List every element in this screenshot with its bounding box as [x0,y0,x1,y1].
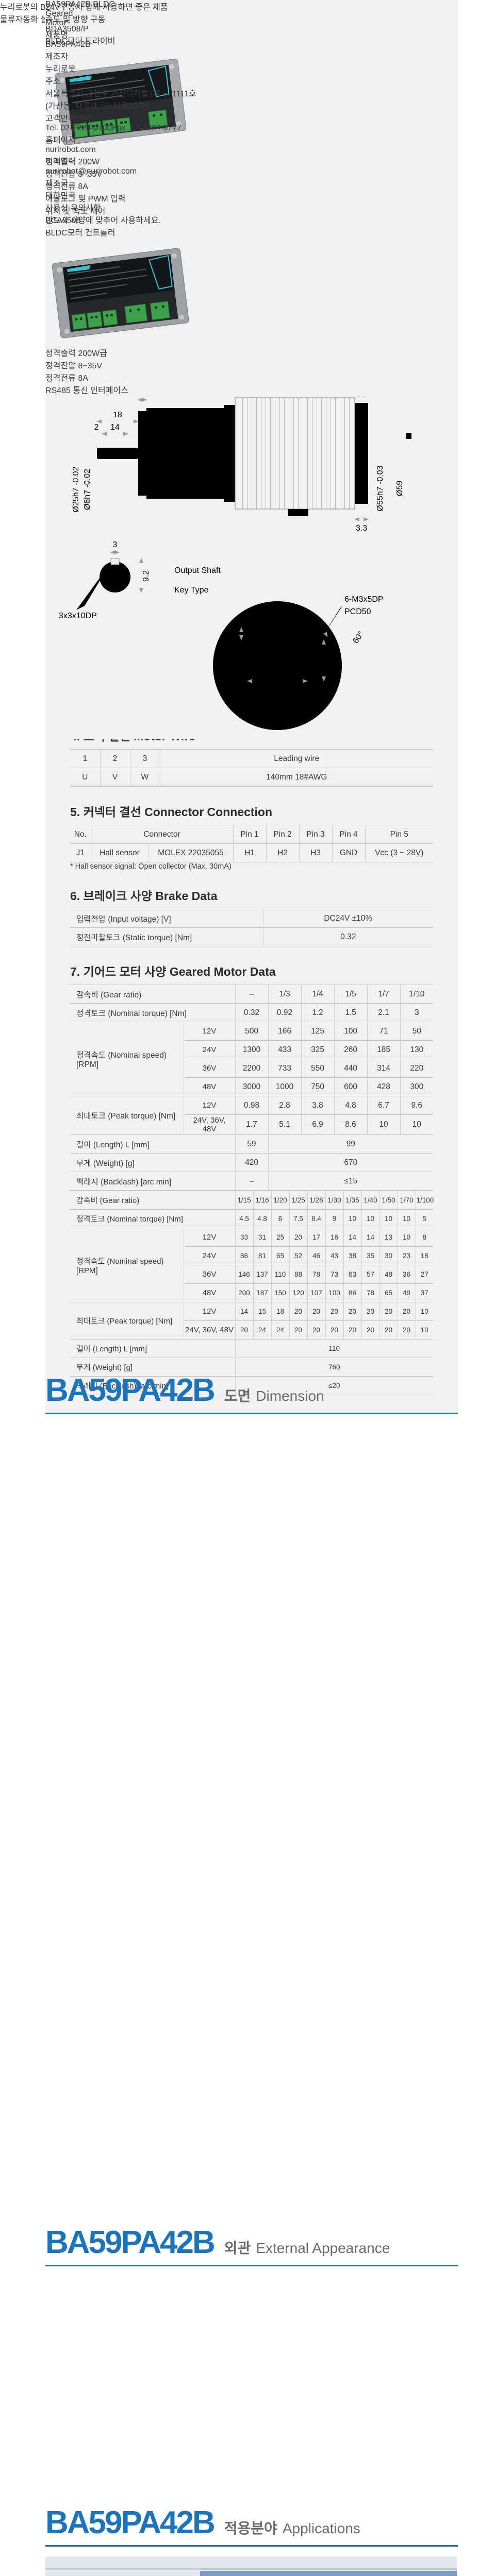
spec-value-cell: 20 [379,1321,398,1340]
spec-value-cell: 2 [100,750,130,768]
footer-model: BA59PA42B [45,0,91,9]
spec-label-cell: 정격토크 (Nominal torque) [Nm] [70,1210,235,1228]
spec-value-cell: 130 [400,1041,433,1059]
spec-value-cell: 33 [235,1228,253,1247]
spec-value-cell: 760 [235,1358,433,1377]
spec-value-cell: 1/30 [325,1191,343,1210]
spec-value-cell: 1/28 [307,1191,325,1210]
section-subtitle-en: External Appearance [256,2240,390,2257]
spec-label-cell: 길이 (Length) L [mm] [70,1135,235,1154]
spec-value-cell: 166 [268,1022,301,1041]
bldc-geared-motor-logo: BLDC Geared Motor [45,0,458,28]
product-photo-controller [45,238,458,346]
section-rule [45,1413,458,1414]
table-row: 최대토크 (Peak torque) [Nm]12V0.982.83.84.86… [70,1096,433,1115]
spec-value-cell: 670 [268,1154,433,1172]
footer-logo-main: BLDC [93,0,115,9]
section-subtitle-en: Applications [283,2520,360,2537]
spec-value-cell: 0.32 [263,928,433,946]
spec-value-cell: 107 [307,1284,325,1302]
footer-row-label: 고객만족센터 [45,111,458,124]
spec-value-cell: 2.1 [367,1004,400,1022]
spec-value-cell: 57 [361,1265,379,1284]
rear-view: 1 J1 U V W 6 16 16 6-M3x5DP PCD50 60° [200,594,384,736]
spec-value-cell: Vcc (3 ~ 28V) [365,844,433,862]
spec-value-cell: 20 [289,1321,307,1340]
svg-text:Ø10: Ø10 [146,481,155,496]
spec-value-cell: U [70,768,100,787]
spec-subgroup-cell: 24V, 36V, 48V [184,1321,235,1340]
table-row: 최대토크 (Peak torque) [Nm]12V14151820202020… [70,1302,433,1321]
spec-value-cell: 1/50 [379,1191,398,1210]
spec-value-cell: 6 [271,1210,289,1228]
spec-subgroup-cell: 12V [184,1302,235,1321]
spec-value-cell: 81 [253,1247,271,1265]
footer-row-value: Tel. 02-2224-0700Fax. 02-2224-0777 [45,124,458,133]
spec-value-cell: 17 [307,1228,325,1247]
spec-value-cell: 600 [334,1078,367,1096]
geared-motor-table-low-ratio: 감속비 (Gear ratio)–1/31/41/51/71/10정격토크 (N… [70,985,433,1191]
spec-value-cell: 0.32 [235,1004,268,1022]
spec-value-cell: 20 [289,1302,307,1321]
footer-row-value: 서울특별시 금천구 가산디지털1로 5, 1111호(가산동, 대륭테크노타운2… [45,87,458,111]
spec-value-cell: H3 [299,844,332,862]
footer-panel: BA59PA42B BLDC Geared Motor 제품명BA59PA42B… [45,0,458,226]
spec-value-cell: 20 [235,1321,253,1340]
footer-info-table: 제품명BA59PA42B제조자누리로봇주소서울특별시 금천구 가산디지털1로 5… [45,28,458,226]
spec-value-cell: 9 [325,1210,343,1228]
spec-value-cell: 100 [325,1284,343,1302]
svg-text:1: 1 [240,647,244,656]
spec-value-cell: 20 [343,1321,361,1340]
footer-row-label: 제품명 [45,28,458,40]
spec-value-cell: 2200 [235,1059,268,1078]
spec-subgroup-cell: 48V [184,1284,235,1302]
table-title-brake: 6. 브레이크 사양 Brake Data [70,886,433,904]
spec-subgroup-cell: 12V [184,1228,235,1247]
spec-value-cell: 110 [235,1340,433,1358]
section-subtitle-ko: 도면 [224,1385,251,1405]
spec-value-cell: No. [70,825,91,844]
spec-value-cell: 1/20 [271,1191,289,1210]
spec-value-cell: 3 [130,750,160,768]
svg-text:W: W [279,623,288,632]
spec-label-cell: 정격속도 (Nominal speed) [RPM] [70,1228,184,1302]
table-row: 정전마찰토크 (Static torque) [Nm]0.32 [70,928,433,946]
spec-value-cell: 23 [398,1247,416,1265]
spec-subgroup-cell: 48V [184,1078,235,1096]
spec-value-cell: 1/100 [416,1191,433,1210]
footer-logo-sub1: Geared [45,9,458,19]
spec-value-cell: 20 [289,1228,307,1247]
spec-value-cell: 150 [271,1284,289,1302]
spec-subgroup-cell: 36V [184,1265,235,1284]
spec-value-cell: 18 [416,1247,433,1265]
spec-value-cell: 4.8 [334,1096,367,1115]
spec-value-cell: 20 [398,1302,416,1321]
svg-text:Output Shaft: Output Shaft [174,566,221,575]
spec-value-cell: 10 [400,1115,433,1135]
spec-value-cell: 6.7 [367,1096,400,1115]
footer-row-label: 사용상 유의사항 [45,201,458,213]
svg-text:16: 16 [325,656,334,665]
applications-photo-factory [45,2556,457,2576]
spec-value-cell: 314 [367,1059,400,1078]
spec-value-cell: 18 [271,1302,289,1321]
spec-value-cell: 50 [400,1022,433,1041]
spec-value-cell: 1.5 [334,1004,367,1022]
spec-subgroup-cell: 12V [184,1096,235,1115]
svg-text:3: 3 [113,540,118,549]
spec-label-cell: 정격토크 (Nominal torque) [Nm] [70,1004,235,1022]
spec-value-cell: 1/35 [343,1191,361,1210]
spec-label-cell: 정전마찰토크 (Static torque) [Nm] [70,928,263,946]
spec-value-cell: 71 [367,1022,400,1041]
spec-value-cell: 49 [398,1284,416,1302]
model-name: BA59PA42B [45,1375,214,1406]
spec-value-cell: 220 [400,1059,433,1078]
footer-row-value: BA59PA42B [45,40,458,49]
svg-text:2: 2 [94,423,99,432]
footer-row-value: nurirobot@nurirobot.com [45,167,458,176]
model-name: BA59PA42B [45,2227,214,2259]
footer-row: 제조국대한민국 [45,176,458,201]
spec-value-cell: 1/7 [367,985,400,1004]
feature-item: RS485 통신 인터페이스 [45,383,458,396]
spec-value-cell: 20 [379,1302,398,1321]
spec-subgroup-cell: 12V [184,1022,235,1041]
spec-value-cell: 59 [235,1135,268,1154]
spec-value-cell: 20 [361,1321,379,1340]
spec-value-cell: 10 [343,1210,361,1228]
svg-text:3.3: 3.3 [356,524,367,533]
spec-value-cell: 1300 [235,1041,268,1059]
table-row: 정격속도 (Nominal speed) [RPM]12V33312520171… [70,1228,433,1247]
spec-value-cell: 78 [307,1265,325,1284]
spec-value-cell: 15 [253,1302,271,1321]
spec-value-cell: 3 [400,1004,433,1022]
spec-value-cell: 9.6 [400,1096,433,1115]
spec-value-cell: 14 [361,1228,379,1247]
spec-value-cell: 2.8 [268,1096,301,1115]
spec-value-cell: 3.8 [301,1096,334,1115]
footer-row-label: 제조국 [45,176,458,189]
spec-value-cell: 5.1 [268,1115,301,1135]
spec-value-cell: 6.9 [301,1115,334,1135]
spec-value-cell: 0.98 [235,1096,268,1115]
spec-value-cell: 35 [361,1247,379,1265]
spec-value-cell: 100 [334,1022,367,1041]
svg-text:18: 18 [113,411,122,419]
spec-value-cell: 73 [325,1265,343,1284]
product-feature-list: 정격출력 200W급정격전압 8~35V정격전류 8ARS485 통신 인터페이… [45,346,458,396]
table-row: 감속비 (Gear ratio)1/151/161/201/251/281/30… [70,1191,433,1210]
footer-row: 홈페이지nurirobot.com [45,133,458,155]
table-row: 무게 (Weight) [g]420670 [70,1154,433,1172]
spec-value-cell: 99 [268,1135,433,1154]
spec-value-cell: 1/16 [253,1191,271,1210]
recommended-product-controller: 위치 및 속도 제어 BCA3508 BLDC모터 컨트롤러 [45,204,458,396]
spec-value-cell: Pin 2 [266,825,299,844]
spec-label-cell: 감속비 (Gear ratio) [70,1191,235,1210]
spec-value-cell: 1/10 [400,985,433,1004]
spec-value-cell: 8.6 [334,1115,367,1135]
spec-value-cell: 20 [307,1302,325,1321]
spec-value-cell: 8.4 [307,1210,325,1228]
feature-item: 정격전류 8A [45,371,458,383]
spec-value-cell: 1.7 [235,1115,268,1135]
motor-wire-table: 123Leading wireUVW140mm 18#AWG [70,749,433,787]
spec-label-cell: 백래시 (Backlash) [arc min] [70,1172,235,1191]
svg-text:Ø8h7 -0.02: Ø8h7 -0.02 [83,469,92,510]
footer-row-label: 이메일 [45,155,458,167]
svg-text:6: 6 [233,630,238,639]
section-subtitle-ko: 적용분야 [224,2517,277,2538]
spec-value-cell: 20 [343,1302,361,1321]
spec-value-cell: 10 [379,1210,398,1228]
spec-value-cell: 65 [271,1247,289,1265]
spec-value-cell: 24 [271,1321,289,1340]
spec-value-cell: ≤15 [268,1172,433,1191]
spec-value-cell: 750 [301,1078,334,1096]
spec-value-cell: 1/15 [235,1191,253,1210]
spec-value-cell: 13 [379,1228,398,1247]
section-heading-applications: BA59PA42B 적용분야 Applications [45,2507,458,2547]
svg-text:Ø25h7 -0.02: Ø25h7 -0.02 [72,466,80,512]
spec-value-cell: Pin 5 [365,825,433,844]
svg-text:6-M3x5DP: 6-M3x5DP [344,595,384,604]
spec-value-cell: 1/40 [361,1191,379,1210]
spec-value-cell: 38 [343,1247,361,1265]
footer-row-value: 대한민국 [45,189,458,201]
spec-value-cell: 3000 [235,1078,268,1096]
footer-row-value: 반드시 사양에 맞추어 사용하세요. [45,213,458,226]
spec-value-cell: MOLEX 22035055 [148,844,233,862]
spec-value-cell: 325 [301,1041,334,1059]
svg-text:Key Type: Key Type [174,586,209,595]
svg-text:60°: 60° [351,630,366,646]
svg-text:3x3x10DP: 3x3x10DP [59,612,97,620]
table-title-connector: 5. 커넥터 결선 Connector Connection [70,802,433,820]
spec-value-cell: J1 [70,844,91,862]
spec-value-cell: GND [332,844,365,862]
spec-value-cell: 36 [398,1265,416,1284]
spec-value-cell: 120 [289,1284,307,1302]
spec-value-cell: 433 [268,1041,301,1059]
spec-value-cell: 27 [416,1265,433,1284]
spec-value-cell: 8 [416,1228,433,1247]
table-row: 정격토크 (Nominal torque) [Nm]0.320.921.21.5… [70,1004,433,1022]
spec-value-cell: Hall sensor [91,844,148,862]
spec-value-cell: 5 [416,1210,433,1228]
svg-text:Ø55h7 -0.03: Ø55h7 -0.03 [376,465,385,511]
spec-subgroup-cell: 24V [184,1041,235,1059]
section-heading-appearance: BA59PA42B 외관 External Appearance [45,2227,458,2266]
spec-value-cell: 10 [416,1302,433,1321]
svg-text:16: 16 [273,686,282,694]
section-rule [45,2545,458,2547]
spec-label-cell: 입력전압 (Input voltage) [V] [70,909,263,928]
spec-value-cell: Connector [91,825,233,844]
spec-value-cell: 137 [253,1265,271,1284]
spec-label-cell: 감속비 (Gear ratio) [70,985,235,1004]
spec-value-cell: 25 [271,1228,289,1247]
spec-value-cell: 146 [235,1265,253,1284]
spec-value-cell: 1/4 [301,985,334,1004]
spec-value-cell: 140mm 18#AWG [160,768,433,787]
spec-value-cell: 20 [325,1321,343,1340]
footer-row-label: 주소 [45,74,458,87]
spec-value-cell: Pin 4 [332,825,365,844]
spec-value-cell: H2 [266,844,299,862]
spec-value-cell: 88 [289,1265,307,1284]
spec-value-cell: 1/70 [398,1191,416,1210]
table-row: 길이 (Length) L [mm]110 [70,1340,433,1358]
table-row: 정격속도 (Nominal speed) [RPM]12V50016612510… [70,1022,433,1041]
spec-value-cell: 185 [367,1041,400,1059]
section-heading-dimension: BA59PA42B 도면 Dimension [45,1375,458,1414]
spec-value-cell: W [130,768,160,787]
table-row: J1Hall sensorMOLEX 22035055H1H2H3GNDVcc … [70,844,433,862]
spec-value-cell: 187 [253,1284,271,1302]
spec-value-cell: 20 [398,1321,416,1340]
footer-row: 이메일nurirobot@nurirobot.com [45,155,458,176]
table-row: 123Leading wire [70,750,433,768]
spec-value-cell: V [100,768,130,787]
spec-value-cell: 10 [361,1210,379,1228]
table-row: No.ConnectorPin 1Pin 2Pin 3Pin 4Pin 5 [70,825,433,844]
spec-value-cell: 20 [325,1302,343,1321]
spec-value-cell: 7.5 [289,1210,307,1228]
svg-text:V: V [269,623,274,632]
table-row: UVW140mm 18#AWG [70,768,433,787]
table-row: 백래시 (Backlash) [arc min]–≤15 [70,1172,433,1191]
spec-value-cell: 46 [307,1247,325,1265]
spec-value-cell: 86 [343,1284,361,1302]
spec-label-cell: 최대토크 (Peak torque) [Nm] [70,1096,184,1135]
spec-value-cell: – [235,1172,268,1191]
footer-row-value: nurirobot.com [45,145,458,155]
spec-value-cell: Leading wire [160,750,433,768]
spec-value-cell: 10 [398,1228,416,1247]
section-rule [45,2265,458,2266]
table-row: 길이 (Length) L [mm]5999 [70,1135,433,1154]
spec-label-cell: 최대토크 (Peak torque) [Nm] [70,1302,184,1340]
footer-row-label: 제조자 [45,49,458,62]
spec-value-cell: 200 [235,1284,253,1302]
spec-value-cell: 428 [367,1078,400,1096]
model-name: BA59PA42B [45,2507,214,2539]
product-type: BLDC모터 컨트롤러 [45,226,458,238]
spec-value-cell: 43 [325,1247,343,1265]
spec-value-cell: 110 [271,1265,289,1284]
footer-row: 제조자누리로봇 [45,49,458,74]
spec-value-cell: 37 [416,1284,433,1302]
svg-text:9.2: 9.2 [142,570,151,582]
spec-value-cell: 63 [343,1265,361,1284]
table-row: 정격토크 (Nominal torque) [Nm]4.54.867.58.49… [70,1210,433,1228]
spec-value-cell: 420 [235,1154,268,1172]
connector-table: No.ConnectorPin 1Pin 2Pin 3Pin 4Pin 5J1H… [70,825,433,862]
footer-row: 사용상 유의사항반드시 사양에 맞추어 사용하세요. [45,201,458,226]
footer-row-value: 누리로봇 [45,62,458,74]
key-section-view: 3 9.2 3x3x10DP Output Shaft Key Type [59,540,221,620]
footer-logo-sub2: Motor [45,19,458,28]
brake-data-table: 입력전압 (Input voltage) [V]DC24V ±10%정전마찰토크… [70,909,433,946]
footer-header: BA59PA42B BLDC Geared Motor [45,0,458,28]
spec-subgroup-cell: 24V [184,1247,235,1265]
spec-value-cell: 1/25 [289,1191,307,1210]
spec-value-cell: 4.5 [235,1210,253,1228]
svg-text:14: 14 [110,423,120,432]
spec-value-cell: 440 [334,1059,367,1078]
spec-value-cell: 65 [379,1284,398,1302]
geared-motor-table-high-ratio: 감속비 (Gear ratio)1/151/161/201/251/281/30… [70,1191,433,1395]
connector-note: * Hall sensor signal: Open collector (Ma… [70,862,433,871]
svg-text:PCD50: PCD50 [344,607,371,616]
spec-value-cell: 4.8 [253,1210,271,1228]
spec-value-cell: 24 [253,1321,271,1340]
footer-row: 제품명BA59PA42B [45,28,458,49]
spec-value-cell: 78 [361,1284,379,1302]
spec-value-cell: 1/3 [268,985,301,1004]
spec-value-cell: DC24V ±10% [263,909,433,928]
spec-value-cell: Pin 1 [233,825,266,844]
svg-text:J1: J1 [310,647,319,656]
footer-row-value-line2: (가산동, 대륭테크노타운20차) [45,99,458,111]
spec-value-cell: 0.92 [268,1004,301,1022]
spec-value-cell: 733 [268,1059,301,1078]
spec-value-cell: Pin 3 [299,825,332,844]
spec-value-cell: 20 [307,1321,325,1340]
svg-text:U: U [256,623,262,632]
spec-value-cell: 16 [325,1228,343,1247]
spec-value-cell: 1/5 [334,985,367,1004]
spec-value-cell: 500 [235,1022,268,1041]
feature-item: 정격전압 8~35V [45,359,458,371]
spec-value-cell: 260 [334,1041,367,1059]
footer-row: 고객만족센터Tel. 02-2224-0700Fax. 02-2224-0777 [45,111,458,133]
spec-value-cell: 10 [416,1321,433,1340]
spec-value-cell: 550 [301,1059,334,1078]
spec-value-cell: 20 [361,1302,379,1321]
spec-label-cell: 길이 (Length) L [mm] [70,1340,235,1358]
spec-value-cell: 30 [379,1247,398,1265]
spec-label-cell: 무게 (Weight) [g] [70,1154,235,1172]
spec-value-cell: 31 [253,1228,271,1247]
spec-value-cell: 1.2 [301,1004,334,1022]
spec-value-cell: 125 [301,1022,334,1041]
spec-value-cell: 1000 [268,1078,301,1096]
spec-value-cell: 14 [343,1228,361,1247]
footer-row-value-secondary: Fax. 02-2224-0777 [112,124,181,132]
spec-subgroup-cell: 36V [184,1059,235,1078]
spec-value-cell: 10 [367,1115,400,1135]
spec-value-cell: 52 [289,1247,307,1265]
section-subtitle-ko: 외관 [224,2237,251,2258]
spec-value-cell: 14 [235,1302,253,1321]
spec-value-cell: 86 [235,1247,253,1265]
feature-item: 정격출력 200W급 [45,346,458,359]
footer-row: 주소서울특별시 금천구 가산디지털1로 5, 1111호(가산동, 대륭테크노타… [45,74,458,111]
table-title-geared: 7. 기어드 모터 사양 Geared Motor Data [70,962,433,979]
spec-value-cell: H1 [233,844,266,862]
spec-value-cell: 10 [398,1210,416,1228]
spec-value-cell: 300 [400,1078,433,1096]
spec-subgroup-cell: 24V, 36V, 48V [184,1115,235,1135]
spec-value-cell: 48 [379,1265,398,1284]
spec-value-cell: – [235,985,268,1004]
